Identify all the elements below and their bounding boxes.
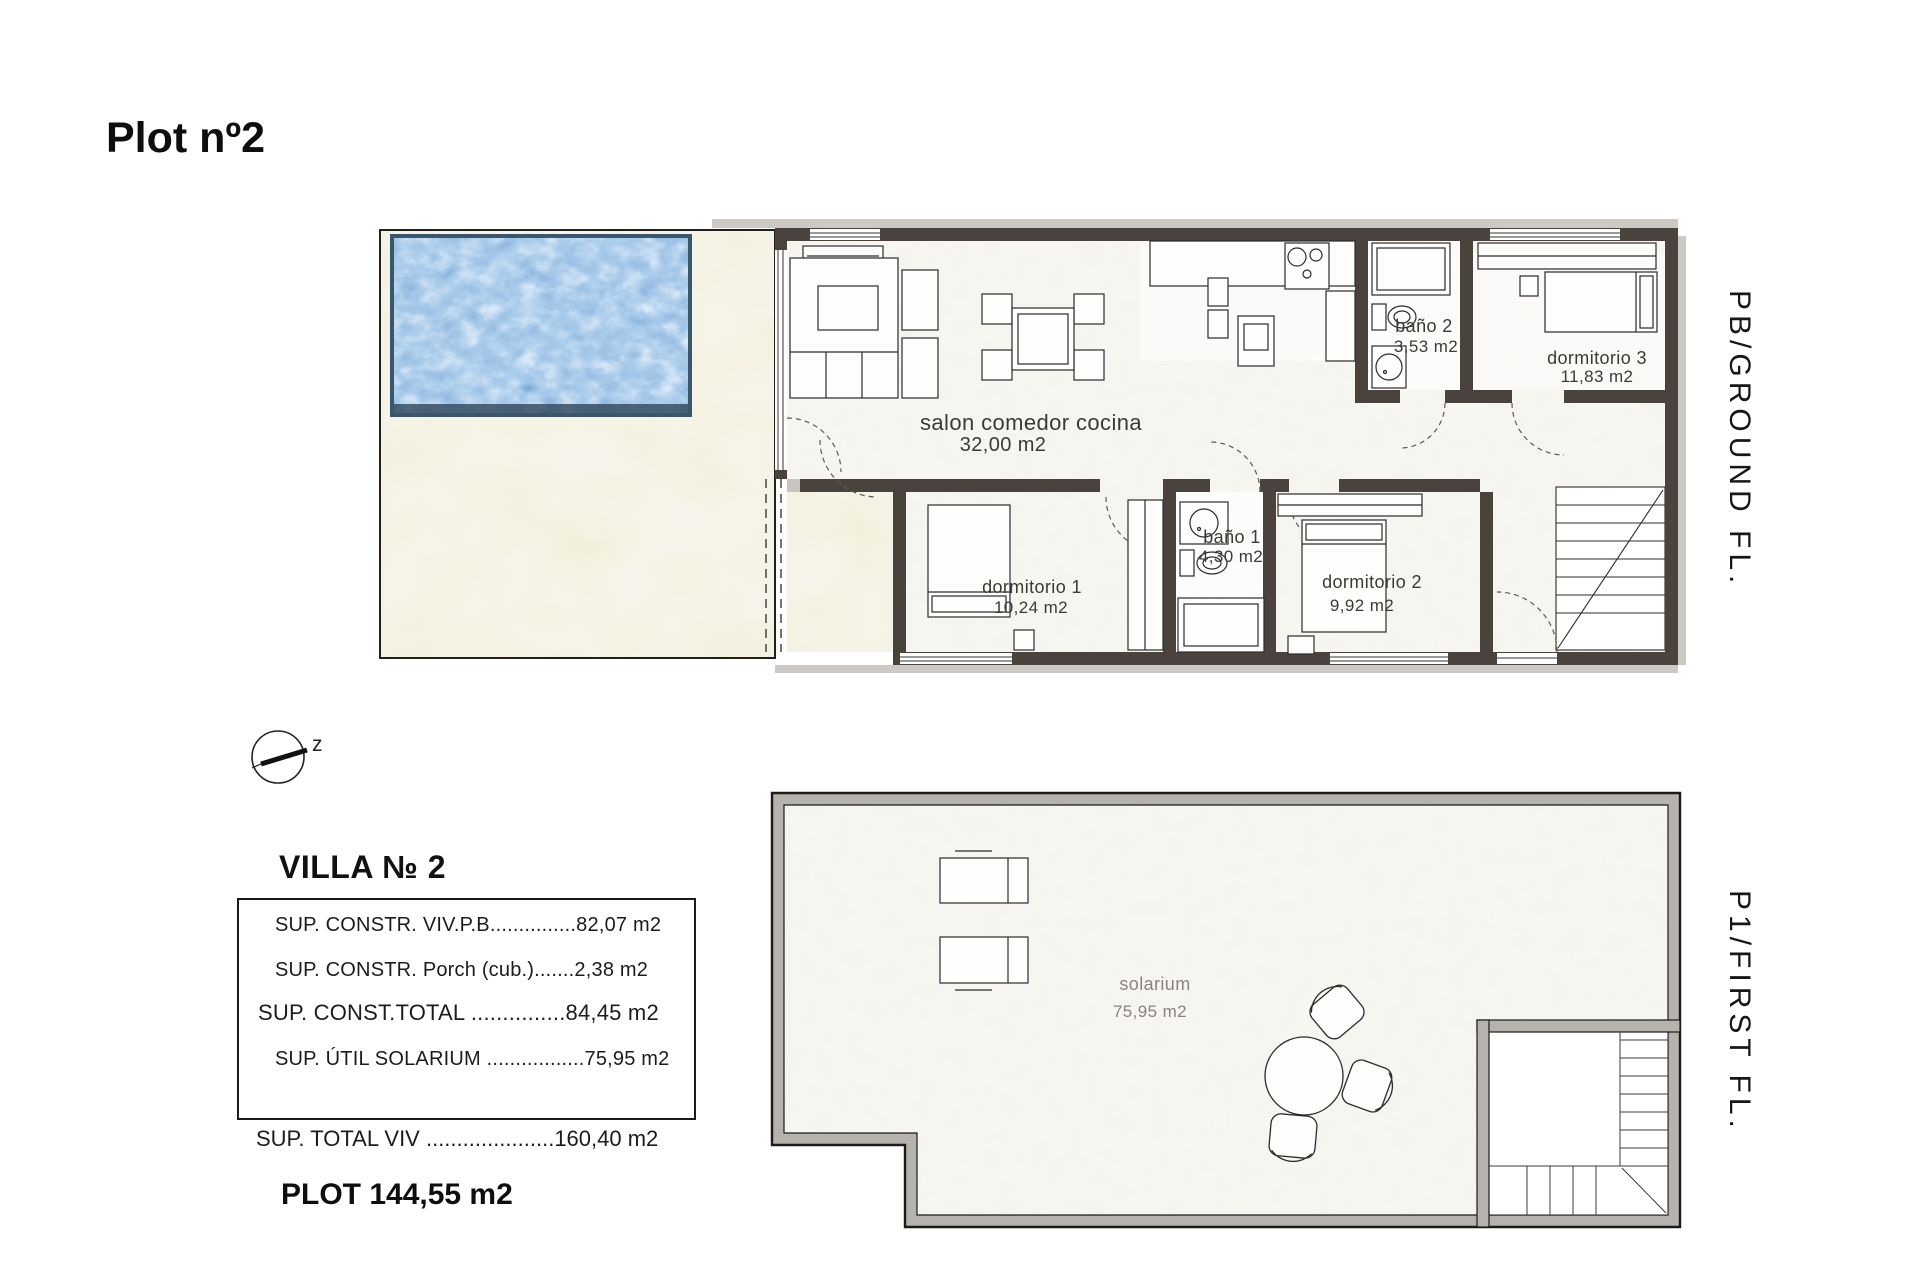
- ground-staircase: [1556, 487, 1665, 650]
- summary-row-util-solarium: SUP. ÚTIL SOLARIUM .................75,9…: [275, 1048, 669, 1071]
- first-floor-plan: [772, 793, 1680, 1227]
- summary-plot-row: PLOT 144,55 m2: [281, 1178, 513, 1212]
- wall-shadow: [775, 665, 1678, 673]
- room-area-bano2: 3,53 m2: [1394, 337, 1458, 357]
- wall-shadow: [712, 219, 1678, 228]
- summary-total-row: SUP. TOTAL VIV .....................160,…: [256, 1126, 658, 1152]
- room-area-dormitorio2: 9,92 m2: [1330, 596, 1394, 616]
- page-title: Plot nº2: [106, 114, 265, 163]
- room-area-bano1: 4,30 m2: [1199, 547, 1263, 567]
- summary-row-const-total: SUP. CONST.TOTAL ...............84,45 m2: [258, 1000, 659, 1026]
- compass-north-label: z: [312, 733, 323, 757]
- summary-box: SUP. CONSTR. VIV.P.B...............82,07…: [237, 898, 696, 1120]
- first-floor-staircase: [1477, 1020, 1680, 1227]
- floor-plan-sheet: Plot nº2 PB/GROUND FL. P1/FIRST FL. salo…: [0, 0, 1920, 1280]
- room-area-salon: 32,00 m2: [960, 434, 1047, 457]
- villa-heading: VILLA № 2: [279, 849, 446, 886]
- wall-shadow: [1678, 236, 1686, 665]
- room-label-bano2: baño 2: [1395, 316, 1452, 337]
- swimming-pool: [392, 236, 690, 415]
- room-area-dormitorio1: 10,24 m2: [994, 598, 1068, 618]
- room-label-dormitorio1: dormitorio 1: [982, 577, 1082, 598]
- room-label-salon: salon comedor cocina: [920, 410, 1142, 436]
- room-area-dormitorio3: 11,83 m2: [1561, 367, 1634, 387]
- first-floor-side-label: P1/FIRST FL.: [1722, 890, 1756, 1133]
- ground-floor-side-label: PB/GROUND FL.: [1722, 290, 1756, 588]
- summary-row-constr-porch: SUP. CONSTR. Porch (cub.).......2,38 m2: [275, 959, 648, 982]
- summary-row-constr-pb: SUP. CONSTR. VIV.P.B...............82,07…: [275, 914, 661, 937]
- room-area-solarium: 75,95 m2: [1113, 1002, 1187, 1022]
- room-label-solarium: solarium: [1119, 974, 1190, 995]
- room-label-dormitorio2: dormitorio 2: [1322, 572, 1422, 593]
- porch-floor: [787, 492, 893, 652]
- room-label-dormitorio3: dormitorio 3: [1547, 348, 1647, 369]
- compass-icon: [252, 731, 307, 783]
- terrace-glass-door: [775, 250, 787, 470]
- room-label-bano1: baño 1: [1203, 527, 1260, 548]
- porch-threshold: [787, 479, 800, 492]
